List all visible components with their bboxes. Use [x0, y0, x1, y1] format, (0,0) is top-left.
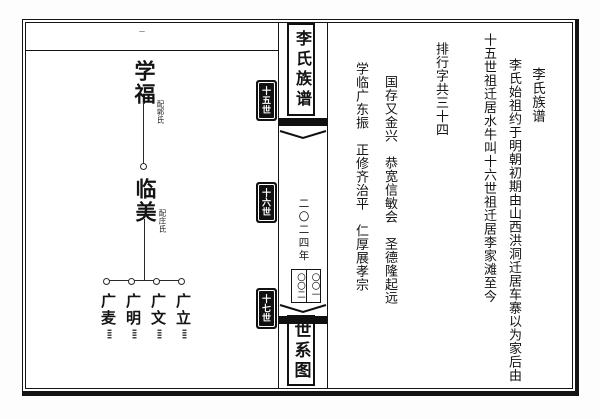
generation-poem-column: 国存又金兴 恭宽信敏会 圣德隆起远 [382, 75, 397, 305]
book-page-scan: 一 学福 配郭氏 临美 配庄氏 广麦 广明 广文 广立 〓〓 〓〓 〓〓 [22, 19, 579, 396]
generation-tab-frame: 十七世 [258, 290, 275, 327]
lineage-node-circle [140, 163, 147, 170]
generation-tab-17: 十七世 [256, 288, 277, 329]
spine-title: 李氏族谱 [289, 30, 313, 110]
preface-title: 李氏族谱 [529, 67, 544, 123]
ancestor-spouse-note: 配郭氏 [155, 100, 166, 140]
generation-tab-15: 十五世 [256, 80, 277, 121]
child-name: 广明 [123, 293, 140, 327]
child-name: 广麦 [98, 293, 115, 327]
child-node-circle [128, 278, 135, 285]
generation-tab-16: 十六世 [256, 182, 277, 223]
descent-line-2 [144, 219, 145, 280]
sibling-connector-bar [106, 280, 182, 281]
spine-title-box: 李氏族谱 [287, 23, 315, 116]
child-node-circle [153, 278, 160, 285]
page-inner-frame: 一 学福 配郭氏 临美 配庄氏 广麦 广明 广文 广立 〓〓 〓〓 〓〓 [25, 22, 573, 389]
preface-column: 十五世祖迁居水牛叫十六世祖迁居李家滩至今 [481, 33, 496, 303]
ancestor-name: 学福 [131, 60, 155, 106]
lineage-chart-page: 一 学福 配郭氏 临美 配庄氏 广麦 广明 广文 广立 〓〓 〓〓 〓〓 [26, 23, 278, 388]
child-note: 〓〓 [126, 329, 136, 339]
child-node-circle [103, 278, 110, 285]
generation-tab-label: 十五世 [260, 86, 273, 115]
generation-tab-label: 十六世 [260, 188, 273, 217]
spine-section-box: 世系图 [287, 315, 315, 386]
generation-tab-frame: 十六世 [258, 184, 275, 221]
preface-column: 李氏始祖约于明朝初期由山西洪洞迁居车寨以为家后由 [506, 58, 521, 382]
preface-text-page: 李氏族谱 李氏始祖约于明朝初期由山西洪洞迁居车寨以为家后由 十五世祖迁居水牛叫十… [328, 23, 572, 388]
spine-section-title: 世系图 [289, 321, 314, 381]
generation-poem-column: 学临广东振 正修齐治平 仁厚展孝宗 [353, 62, 368, 292]
child-note: 〓〓 [151, 329, 161, 339]
page-number-right: 〇〇一 [307, 270, 321, 302]
chart-header-band: 一 [26, 23, 278, 51]
page-number-box: 〇〇一 〇〇二 [291, 269, 321, 303]
book-spine-column: 李氏族谱 二〇二四年 〇〇一 〇〇二 世系图 [278, 23, 328, 388]
spine-year: 二〇二四年 [279, 193, 327, 267]
descent-line-1 [143, 102, 144, 163]
child-name: 广文 [148, 293, 165, 327]
child-node-circle [178, 278, 185, 285]
page-number-left: 〇〇二 [292, 270, 306, 302]
child-note: 〓〓 [101, 329, 111, 339]
generation-tab-frame: 十五世 [258, 82, 275, 119]
generation-tab-label: 十七世 [260, 294, 273, 323]
corner-mark: 一 [139, 27, 145, 36]
descendant-name: 临美 [132, 178, 156, 224]
child-note: 〓〓 [176, 329, 186, 339]
descendant-spouse-note: 配庄氏 [157, 209, 168, 249]
child-name: 广立 [173, 293, 190, 327]
preface-column: 排行字共三十四 [433, 42, 448, 137]
fishtail-ornament-top [279, 118, 327, 144]
